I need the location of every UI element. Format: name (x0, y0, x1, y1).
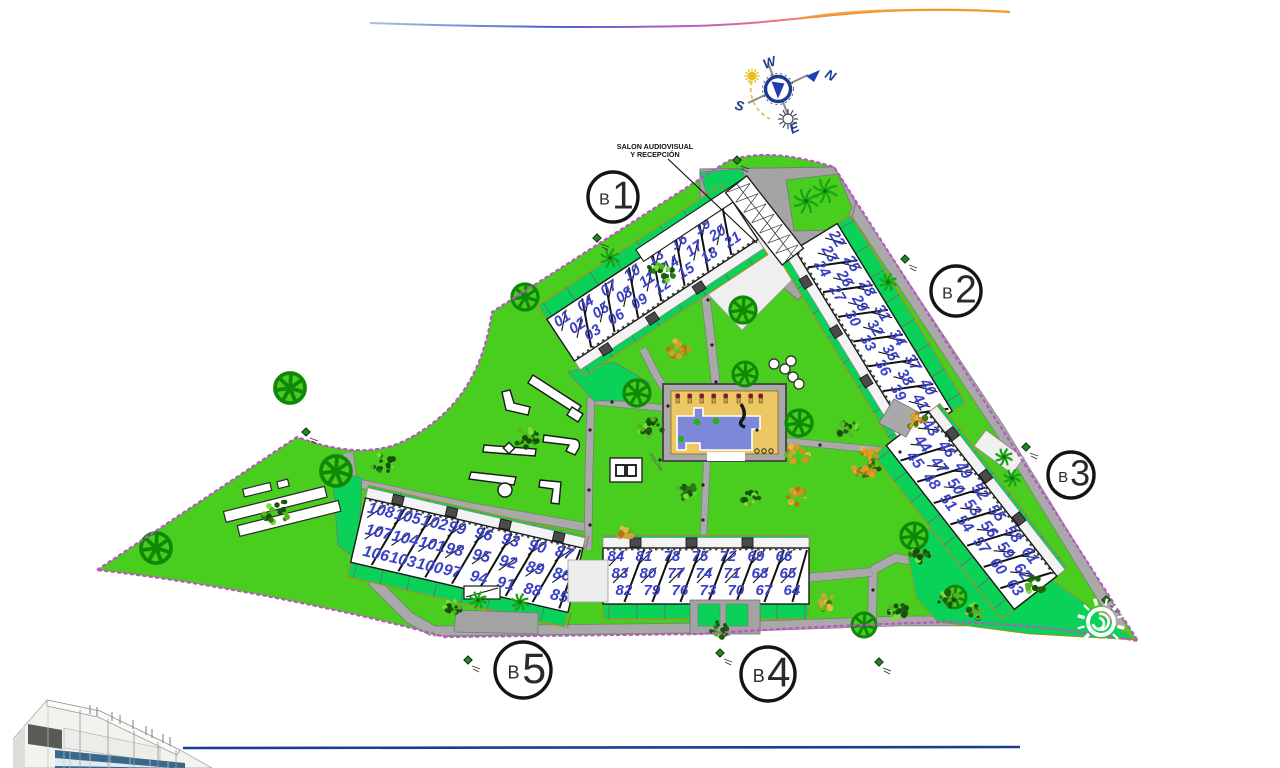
svg-text:75: 75 (692, 548, 709, 565)
svg-text:Y RECEPCIÓN: Y RECEPCIÓN (630, 150, 679, 159)
svg-text:73: 73 (700, 582, 717, 599)
svg-text:5: 5 (522, 645, 546, 693)
svg-text:2: 2 (955, 269, 977, 312)
svg-text:69: 69 (748, 548, 765, 565)
svg-text:4: 4 (767, 648, 790, 695)
svg-text:B: B (599, 192, 610, 209)
svg-text:71: 71 (724, 565, 741, 582)
svg-text:84: 84 (608, 548, 625, 565)
svg-text:66: 66 (776, 548, 793, 565)
svg-text:74: 74 (696, 565, 713, 582)
svg-text:65: 65 (780, 565, 797, 582)
svg-text:B: B (1058, 469, 1068, 486)
svg-text:67: 67 (756, 582, 773, 599)
svg-text:72: 72 (720, 548, 737, 565)
svg-text:B: B (753, 666, 765, 686)
svg-text:B: B (507, 662, 519, 682)
svg-text:81: 81 (636, 548, 653, 565)
svg-text:76: 76 (672, 582, 689, 599)
svg-text:83: 83 (612, 565, 629, 582)
svg-text:80: 80 (640, 565, 657, 582)
svg-text:B: B (942, 286, 953, 303)
svg-text:1: 1 (612, 175, 634, 218)
svg-text:70: 70 (728, 582, 745, 599)
svg-text:64: 64 (784, 582, 801, 599)
svg-text:79: 79 (644, 582, 661, 599)
svg-text:68: 68 (752, 565, 769, 582)
svg-text:77: 77 (668, 565, 685, 582)
svg-text:78: 78 (664, 548, 681, 565)
svg-text:3: 3 (1070, 453, 1090, 494)
svg-text:82: 82 (616, 582, 633, 599)
